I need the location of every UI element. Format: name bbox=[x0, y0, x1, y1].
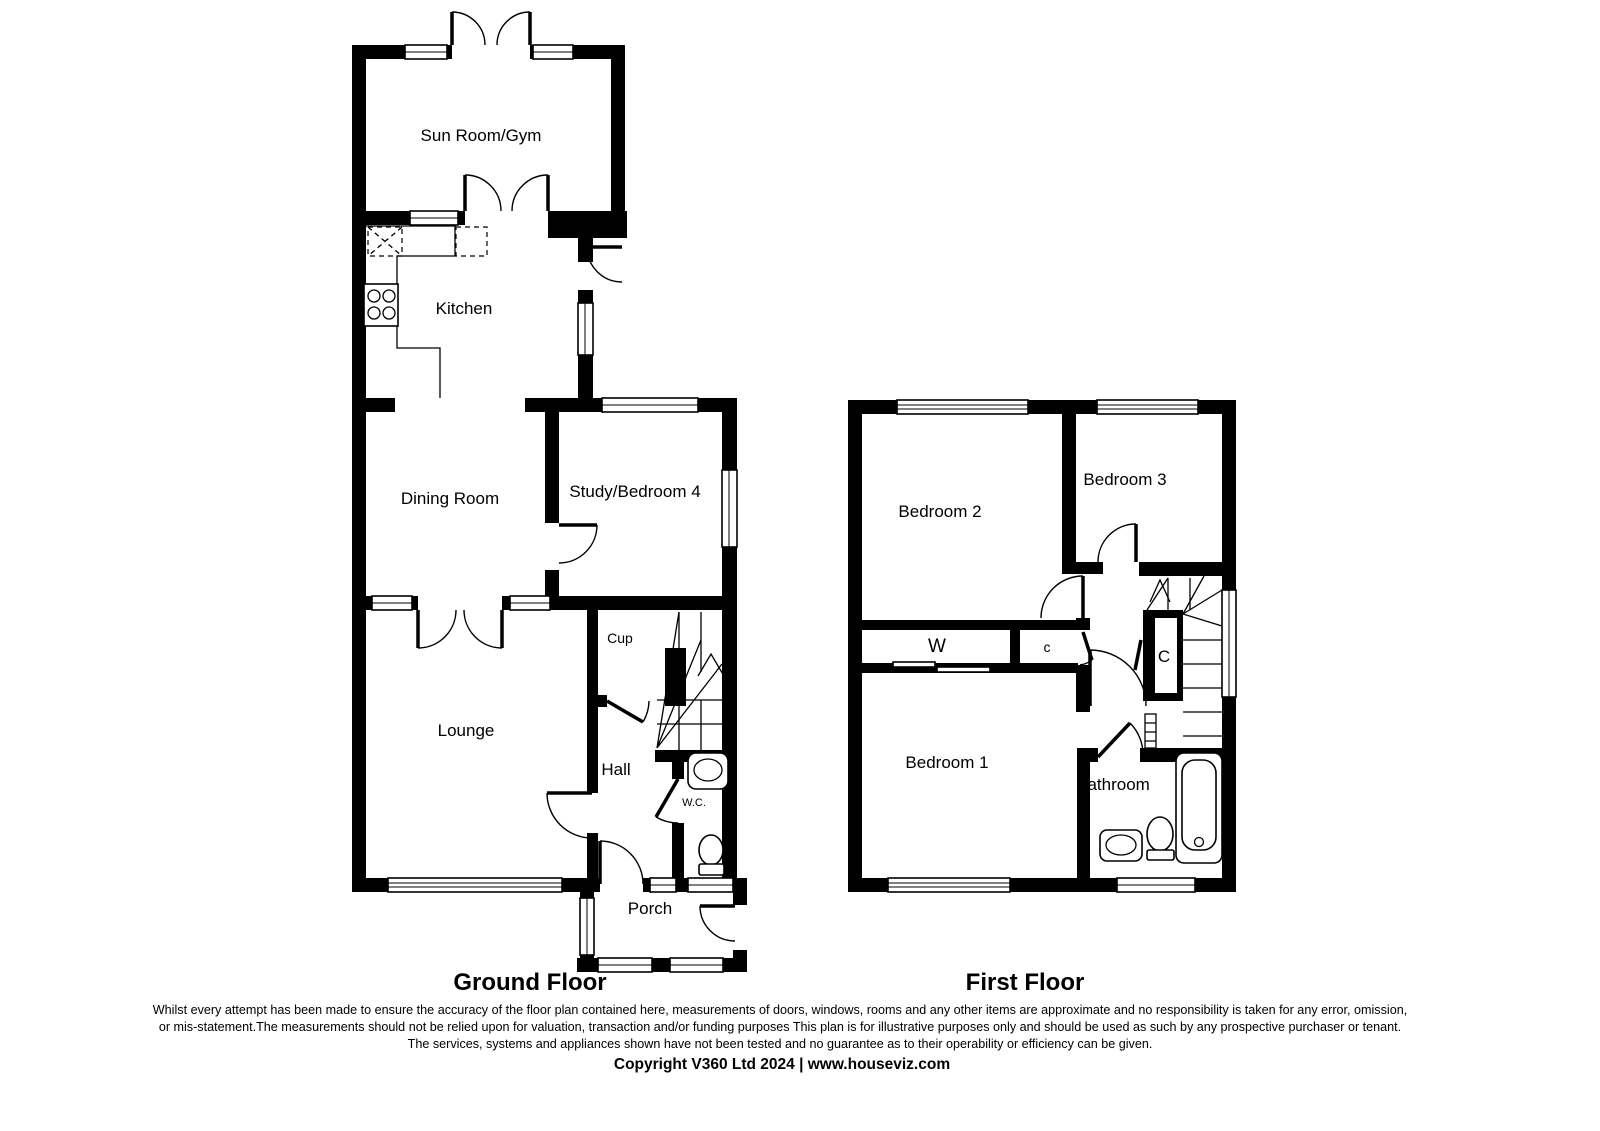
toilet bbox=[1147, 817, 1174, 860]
sink bbox=[1100, 830, 1142, 861]
room-label-porch: Porch bbox=[628, 899, 672, 918]
window bbox=[602, 398, 698, 412]
window bbox=[670, 958, 723, 972]
window bbox=[533, 45, 573, 59]
window bbox=[510, 596, 550, 610]
window bbox=[888, 878, 1010, 892]
hob bbox=[364, 284, 398, 326]
room-label-hall: Hall bbox=[601, 760, 630, 779]
room-label-bedroom2: Bedroom 2 bbox=[898, 502, 981, 521]
room-label-bedroom1: Bedroom 1 bbox=[905, 753, 988, 772]
door bbox=[1041, 576, 1083, 618]
window bbox=[688, 878, 733, 892]
stair-direction-arrow bbox=[698, 654, 724, 676]
footer: Whilst every attempt has been made to en… bbox=[153, 1003, 1407, 1073]
appliance-box bbox=[368, 227, 402, 256]
bathtub bbox=[1176, 753, 1222, 863]
window bbox=[388, 878, 562, 892]
room-label-wardrobe: W bbox=[928, 636, 946, 657]
double-door bbox=[418, 610, 502, 648]
bathroom-fixtures bbox=[1100, 753, 1222, 863]
floor-titles: Ground Floor First Floor bbox=[453, 969, 1084, 996]
balustrade bbox=[1145, 714, 1156, 748]
door bbox=[559, 525, 597, 563]
room-label-study: Study/Bedroom 4 bbox=[569, 482, 700, 501]
door bbox=[547, 793, 592, 838]
window bbox=[1097, 400, 1198, 414]
door bbox=[1098, 723, 1143, 757]
window bbox=[372, 596, 412, 610]
door bbox=[700, 906, 735, 941]
window bbox=[650, 878, 676, 892]
front-door bbox=[600, 841, 643, 884]
first-floor-stairs bbox=[1145, 576, 1222, 748]
room-label-wc: W.C. bbox=[682, 797, 706, 809]
room-label-closet-small: c bbox=[1044, 639, 1051, 655]
door bbox=[607, 701, 649, 722]
room-label-sun-room: Sun Room/Gym bbox=[421, 126, 542, 145]
toilet bbox=[699, 835, 724, 875]
window bbox=[410, 211, 458, 225]
room-label-bedroom3: Bedroom 3 bbox=[1083, 470, 1166, 489]
room-label-dining: Dining Room bbox=[401, 489, 499, 508]
appliance-box bbox=[456, 227, 487, 256]
first-floor-title: First Floor bbox=[966, 969, 1085, 996]
sink bbox=[688, 753, 728, 789]
disclaimer-line-2: or mis-statement.The measurements should… bbox=[159, 1020, 1401, 1034]
disclaimer-line-3: The services, systems and appliances sho… bbox=[408, 1037, 1153, 1051]
double-door bbox=[452, 12, 530, 45]
first-floor-doors bbox=[1041, 524, 1146, 757]
double-door bbox=[465, 175, 548, 211]
first-floor-labels: Bedroom 2 Bedroom 3 Bedroom 1 Bathroom W… bbox=[898, 470, 1170, 794]
disclaimer-line-1: Whilst every attempt has been made to en… bbox=[153, 1003, 1407, 1017]
ground-floor-title: Ground Floor bbox=[453, 969, 606, 996]
closet-door bbox=[1135, 640, 1141, 670]
room-label-cup: Cup bbox=[607, 630, 633, 646]
window bbox=[897, 400, 1028, 414]
window bbox=[1117, 878, 1195, 892]
window bbox=[580, 898, 594, 955]
room-label-bathroom: Bathroom bbox=[1076, 775, 1150, 794]
door bbox=[1098, 524, 1136, 562]
room-label-lounge: Lounge bbox=[438, 721, 495, 740]
window bbox=[578, 303, 593, 355]
copyright-line: Copyright V360 Ltd 2024 | www.houseviz.c… bbox=[614, 1056, 950, 1073]
room-label-closet-large: C bbox=[1158, 647, 1170, 666]
window bbox=[722, 470, 737, 547]
window bbox=[1222, 590, 1236, 697]
room-label-kitchen: Kitchen bbox=[436, 299, 493, 318]
window bbox=[405, 45, 447, 59]
floorplan-canvas: Sun Room/Gym Kitchen Dining Room Study/B… bbox=[0, 0, 1600, 1131]
closet-door bbox=[1080, 632, 1092, 665]
